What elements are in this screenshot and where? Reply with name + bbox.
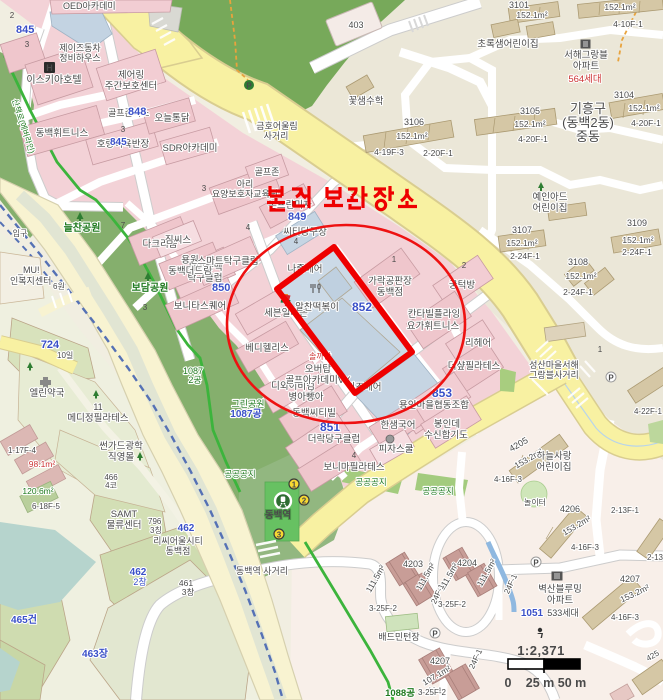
svg-text:403: 403: [348, 20, 363, 30]
svg-text:가락공판장: 가락공판장: [368, 275, 412, 287]
svg-text:동백역 사거리: 동백역 사거리: [236, 566, 288, 576]
svg-text:금호어울림: 금호어울림: [256, 120, 297, 131]
svg-text:4-16F-3: 4-16F-3: [571, 543, 600, 552]
svg-text:3105: 3105: [520, 106, 540, 116]
svg-text:리헤어: 리헤어: [465, 337, 491, 349]
svg-text:초록샘어린이집: 초록샘어린이집: [477, 38, 538, 50]
svg-text:병아빵아: 병아빵아: [289, 392, 324, 403]
svg-text:4-20F-1: 4-20F-1: [631, 118, 661, 128]
svg-text:4204: 4204: [457, 558, 477, 568]
svg-text:4: 4: [246, 223, 251, 232]
svg-text:463장: 463장: [82, 647, 109, 660]
svg-text:P: P: [432, 630, 438, 639]
svg-text:골프존: 골프존: [255, 167, 280, 177]
svg-text:152.1m²: 152.1m²: [514, 119, 545, 129]
svg-text:놀이터: 놀이터: [524, 497, 546, 507]
svg-text:공공공지: 공공공지: [224, 469, 255, 479]
svg-text:이스키아호텔: 이스키아호텔: [26, 74, 81, 86]
svg-text:1:2,371: 1:2,371: [517, 643, 565, 658]
svg-text:25 m: 25 m: [526, 676, 555, 690]
svg-text:베디헬리스: 베디헬리스: [245, 343, 289, 354]
svg-text:그린공원: 그린공원: [231, 399, 264, 409]
svg-text:3-25F-2: 3-25F-2: [418, 688, 447, 697]
svg-text:주간보호센터: 주간보호센터: [105, 81, 157, 92]
svg-text:아파트: 아파트: [573, 61, 599, 72]
svg-text:11: 11: [93, 402, 102, 412]
svg-text:2창: 2창: [133, 577, 146, 587]
svg-text:요양보호자교육원: 요양보호자교육원: [212, 189, 278, 199]
svg-text:152.1m²: 152.1m²: [565, 271, 596, 281]
svg-text:제이즈동차: 제이즈동차: [59, 42, 101, 53]
svg-text:4-19F-3: 4-19F-3: [374, 147, 404, 157]
svg-text:3-25F-2: 3-25F-2: [438, 600, 467, 609]
svg-text:0: 0: [505, 676, 512, 690]
svg-text:850: 850: [212, 282, 230, 294]
svg-text:1: 1: [598, 345, 603, 354]
svg-text:용원: 용원: [181, 255, 198, 266]
svg-text:3: 3: [121, 125, 126, 134]
svg-text:2공: 2공: [188, 375, 201, 385]
svg-text:1: 1: [392, 255, 397, 264]
svg-text:2-20F-1: 2-20F-1: [423, 148, 453, 158]
svg-text:2-24F-1: 2-24F-1: [563, 287, 593, 297]
svg-text:152.1m²: 152.1m²: [516, 10, 547, 20]
svg-text:2-13F-1: 2-13F-1: [611, 506, 640, 515]
svg-text:예인아드: 예인아드: [533, 192, 568, 203]
svg-text:정비하우스: 정비하우스: [59, 53, 100, 63]
svg-text:3: 3: [202, 184, 207, 193]
svg-text:벽산블루밍: 벽산블루밍: [538, 584, 582, 595]
svg-text:849: 849: [288, 211, 306, 223]
svg-text:7: 7: [121, 221, 126, 230]
svg-text:알찬떡볶이: 알찬떡볶이: [295, 302, 339, 313]
svg-text:제어링: 제어링: [118, 69, 144, 81]
svg-text:3: 3: [25, 40, 30, 49]
svg-text:공공공지: 공공공지: [355, 477, 386, 487]
svg-text:6-18F-5: 6-18F-5: [32, 502, 61, 511]
svg-text:배드민턴장: 배드민턴장: [378, 632, 419, 642]
svg-text:4: 4: [352, 451, 357, 460]
svg-text:533세대: 533세대: [547, 608, 579, 618]
svg-text:아파트: 아파트: [547, 595, 573, 606]
svg-text:1-17F-4: 1-17F-4: [8, 446, 37, 455]
svg-text:4-16F-3: 4-16F-3: [611, 613, 640, 622]
svg-text:152.1m²: 152.1m²: [396, 131, 427, 141]
svg-text:P: P: [533, 559, 539, 568]
svg-text:1088공: 1088공: [385, 688, 415, 699]
svg-text:564세대: 564세대: [568, 74, 601, 85]
svg-text:3106: 3106: [404, 117, 424, 127]
svg-text:152.1m²: 152.1m²: [622, 235, 653, 245]
svg-text:2: 2: [10, 11, 15, 20]
svg-text:사거리: 사거리: [264, 131, 289, 141]
svg-text:3101: 3101: [509, 0, 529, 10]
svg-text:리씨어울시티: 리씨어울시티: [153, 536, 203, 546]
svg-text:오늘통닭: 오늘통닭: [155, 112, 190, 124]
svg-text:동백휘트니스: 동백휘트니스: [36, 128, 89, 139]
svg-text:기흥구: 기흥구: [570, 101, 606, 116]
svg-text:메디정필라테스: 메디정필라테스: [67, 412, 128, 424]
svg-text:동백점: 동백점: [377, 286, 403, 298]
svg-text:피자스쿨: 피자스쿨: [379, 444, 414, 455]
svg-text:동백점: 동백점: [166, 545, 191, 556]
svg-text:98.1m²: 98.1m²: [29, 459, 56, 469]
svg-text:3104: 3104: [614, 90, 634, 100]
svg-text:짐씨스: 짐씨스: [165, 235, 191, 246]
svg-text:4203: 4203: [403, 559, 423, 569]
svg-text:썬가드광학: 썬가드광학: [99, 440, 143, 452]
svg-text:152.1m²: 152.1m²: [628, 103, 659, 113]
svg-text:6원: 6원: [53, 282, 65, 291]
svg-text:물류센터: 물류센터: [107, 520, 142, 531]
svg-text:_MU!: _MU!: [17, 265, 40, 275]
svg-text:4-22F-1: 4-22F-1: [634, 407, 663, 416]
svg-text:845: 845: [110, 137, 127, 148]
svg-text:하늘사랑: 하늘사랑: [537, 450, 572, 462]
svg-text:P: P: [246, 82, 252, 91]
svg-text:848: 848: [128, 106, 146, 118]
svg-text:3-25F-2: 3-25F-2: [369, 604, 398, 613]
svg-text:엘린약국: 엘린약국: [30, 387, 65, 399]
svg-text:한샘국어: 한샘국어: [381, 420, 416, 431]
svg-text:중동: 중동: [576, 129, 600, 144]
svg-text:동백역: 동백역: [265, 509, 291, 521]
svg-text:4-20F-1: 4-20F-1: [518, 134, 548, 144]
svg-text:2: 2: [462, 261, 467, 270]
svg-text:724: 724: [41, 339, 60, 351]
svg-text:4: 4: [294, 237, 299, 246]
svg-text:아리: 아리: [237, 179, 254, 189]
svg-text:152.1m²: 152.1m²: [506, 238, 537, 248]
svg-text:어린이집: 어린이집: [537, 461, 572, 473]
svg-text:꽃샘수학: 꽃샘수학: [349, 96, 384, 107]
svg-text:성산마을서해: 성산마을서해: [529, 360, 579, 370]
svg-text:SAMT: SAMT: [111, 509, 138, 520]
svg-text:4207: 4207: [620, 574, 640, 584]
svg-text:152.1m²: 152.1m²: [604, 2, 635, 12]
svg-text:10일: 10일: [57, 351, 73, 360]
svg-text:인복지센터: 인복지센터: [10, 276, 51, 286]
svg-text:2: 2: [302, 497, 307, 506]
svg-text:4코: 4코: [105, 481, 117, 490]
svg-text:1051: 1051: [521, 608, 544, 619]
svg-text:1: 1: [292, 481, 297, 490]
svg-text:796: 796: [148, 517, 162, 526]
svg-text:3108: 3108: [568, 257, 588, 267]
svg-text:공공공지: 공공공지: [422, 486, 453, 496]
svg-text:봉인데: 봉인데: [434, 419, 460, 430]
svg-text:요가휘트니스: 요가휘트니스: [407, 321, 460, 332]
svg-text:3: 3: [143, 303, 148, 312]
svg-text:칸타빌플라잉: 칸타빌플라잉: [408, 308, 460, 320]
svg-text:입구: 입구: [13, 229, 28, 238]
svg-text:3창: 3창: [182, 587, 195, 597]
svg-text:용인마을협동조합: 용인마을협동조합: [399, 399, 469, 411]
svg-text:그랑블사거리: 그랑블사거리: [529, 369, 579, 380]
svg-text:더락당구클럽: 더락당구클럽: [308, 433, 360, 445]
svg-text:2-24F-1: 2-24F-1: [510, 251, 540, 261]
svg-text:보니타스퀘어: 보니타스퀘어: [174, 301, 226, 312]
svg-text:서해그랑블: 서해그랑블: [564, 49, 608, 61]
svg-text:1087공: 1087공: [230, 408, 261, 420]
svg-text:3: 3: [277, 531, 282, 540]
svg-text:4206: 4206: [560, 504, 580, 514]
svg-text:늘찬공원: 늘찬공원: [64, 221, 101, 234]
svg-text:4-10F-1: 4-10F-1: [613, 19, 643, 29]
svg-text:4-16F-3: 4-16F-3: [494, 475, 523, 484]
svg-text:465건: 465건: [11, 613, 37, 626]
svg-text:오버탑: 오버탑: [305, 363, 331, 375]
svg-text:120.6m²: 120.6m²: [22, 486, 53, 496]
svg-text:462: 462: [178, 523, 195, 534]
svg-text:2-13F-1: 2-13F-1: [647, 553, 663, 562]
svg-text:3109: 3109: [627, 218, 647, 228]
svg-text:3107: 3107: [512, 225, 532, 235]
svg-text:50 m: 50 m: [558, 676, 587, 690]
svg-text:2-24F-1: 2-24F-1: [622, 247, 652, 257]
svg-text:수신합기도: 수신합기도: [424, 430, 468, 441]
svg-text:OED아카데미: OED아카데미: [63, 1, 116, 11]
svg-text:(동백2동): (동백2동): [562, 115, 614, 130]
svg-text:845: 845: [16, 24, 34, 36]
svg-text:852: 852: [352, 300, 372, 314]
svg-text:보담공원: 보담공원: [132, 281, 169, 294]
svg-text:직영몰: 직영몰: [108, 452, 134, 463]
svg-text:SDR아카데미: SDR아카데미: [162, 143, 217, 154]
svg-text:어린이집: 어린이집: [533, 202, 568, 214]
svg-text:보니마필라테스: 보니마필라테스: [323, 461, 384, 473]
svg-text:3칭: 3칭: [150, 526, 162, 535]
svg-text:H: H: [46, 63, 53, 73]
svg-text:P: P: [608, 374, 614, 383]
